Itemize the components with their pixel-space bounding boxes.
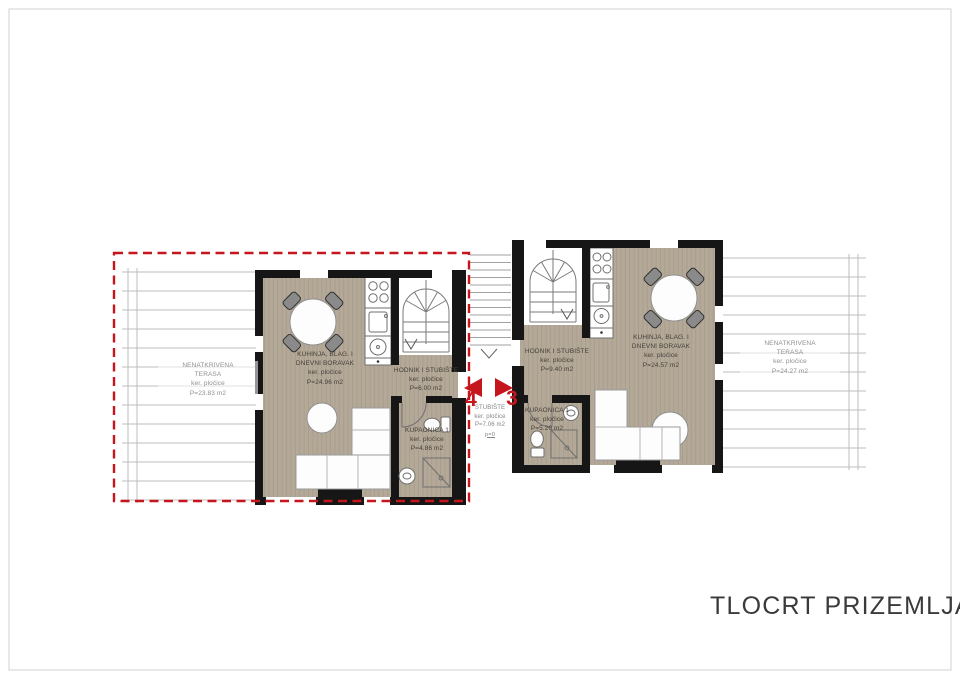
left-terrace — [122, 268, 256, 503]
floorplan-drawing — [0, 0, 960, 679]
plan-title: TLOCRT PRIZEMLJA — [710, 592, 922, 621]
right-terrace — [723, 254, 866, 470]
unit-number-3: 3 — [499, 388, 525, 409]
dining-table-left — [282, 291, 344, 353]
round-table-left — [307, 403, 337, 433]
floorplan-page: NENATKRIVENA TERASA ker. pločice P=23.83… — [0, 0, 960, 679]
central-stairwell — [470, 255, 511, 358]
page-frame — [9, 9, 951, 670]
dining-table-right — [643, 267, 705, 329]
unit-number-4: 4 — [458, 389, 484, 410]
